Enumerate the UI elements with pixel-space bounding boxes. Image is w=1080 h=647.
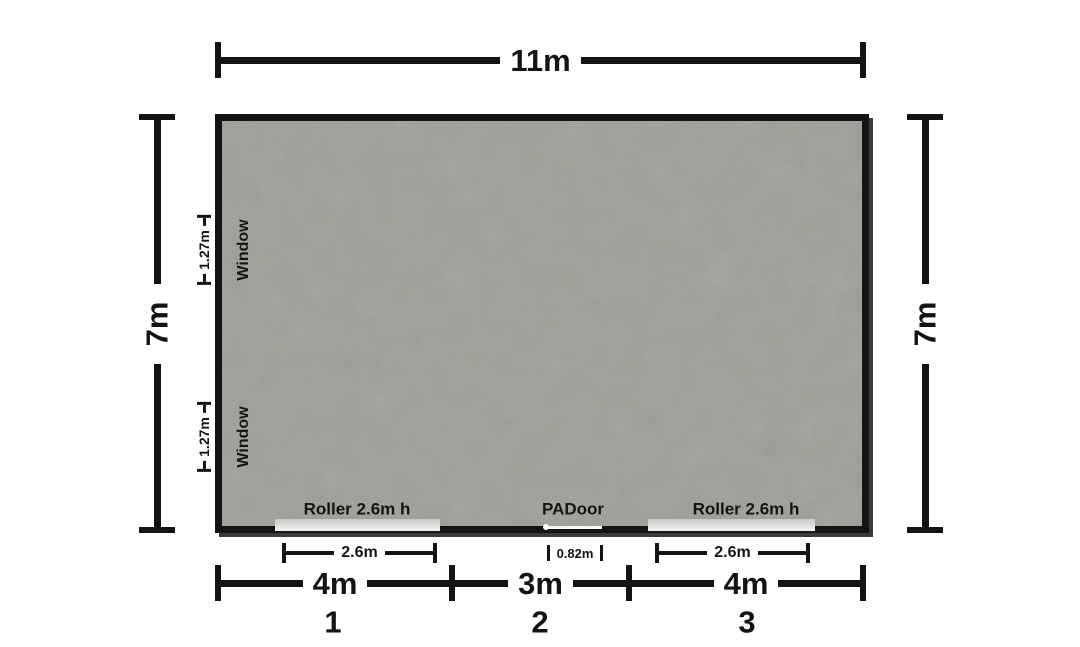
dim-tick bbox=[197, 215, 211, 218]
window-2-offset-dimension: 1.27m bbox=[197, 402, 211, 472]
dim-segment bbox=[203, 405, 206, 413]
bay-1-dimension: 4m bbox=[221, 565, 449, 601]
dim-segment bbox=[922, 364, 929, 528]
bay-3-dimension: 4m bbox=[632, 565, 860, 601]
dim-segment bbox=[367, 580, 449, 587]
pa-door-width-dimension: 0.82m bbox=[547, 545, 603, 561]
roller-door-right-width-dimension: 2.6m bbox=[655, 543, 810, 563]
dim-segment bbox=[221, 57, 500, 64]
roller-door-left bbox=[275, 519, 440, 531]
dim-segment bbox=[154, 364, 161, 528]
pa-door-hinge-dot bbox=[543, 524, 549, 530]
dim-segment bbox=[632, 580, 714, 587]
dim-tick bbox=[907, 527, 943, 533]
dim-tick bbox=[197, 402, 211, 405]
roller-door-right bbox=[648, 519, 815, 531]
bay-3-width-label: 4m bbox=[724, 568, 769, 599]
window-1-label: Window bbox=[236, 219, 252, 280]
window-1-offset-label: 1.27m bbox=[197, 230, 211, 270]
roller-door-right-label: Roller 2.6m h bbox=[693, 501, 800, 518]
bottom-bay-dimension: 4m 3m 4m bbox=[215, 565, 866, 601]
pa-door-width-label: 0.82m bbox=[557, 547, 594, 560]
dim-segment bbox=[203, 218, 206, 226]
window-2-offset-label: 1.27m bbox=[197, 417, 211, 457]
building-outline bbox=[215, 114, 869, 533]
dim-tick bbox=[197, 469, 211, 472]
top-width-dimension-label: 11m bbox=[510, 45, 570, 76]
dim-segment bbox=[581, 57, 860, 64]
roller-door-left-width-dimension: 2.6m bbox=[282, 543, 437, 563]
dim-tick bbox=[547, 545, 550, 561]
bay-2-width-label: 3m bbox=[518, 568, 563, 599]
roller-door-left-label: Roller 2.6m h bbox=[304, 501, 411, 518]
window-1-offset-dimension: 1.27m bbox=[197, 215, 211, 285]
left-height-dimension: 7m bbox=[139, 114, 175, 533]
bay-1-number: 1 bbox=[324, 607, 341, 638]
bay-3-number: 3 bbox=[738, 607, 755, 638]
dim-segment bbox=[221, 580, 303, 587]
top-width-dimension: 11m bbox=[215, 42, 866, 78]
dim-tick bbox=[433, 543, 437, 563]
roller-door-left-width-label: 2.6m bbox=[341, 545, 377, 561]
dim-tick bbox=[806, 543, 810, 563]
dim-segment bbox=[286, 551, 334, 555]
right-height-dimension: 7m bbox=[907, 114, 943, 533]
dim-tick bbox=[860, 565, 866, 601]
dim-tick bbox=[600, 545, 603, 561]
bay-2-dimension: 3m bbox=[455, 565, 626, 601]
dim-segment bbox=[203, 461, 206, 469]
dim-segment bbox=[778, 580, 860, 587]
pa-door-label: PADoor bbox=[542, 501, 604, 518]
dim-tick bbox=[860, 42, 866, 78]
dim-segment bbox=[922, 120, 929, 284]
left-height-dimension-label: 7m bbox=[142, 301, 173, 346]
pa-door bbox=[545, 526, 602, 529]
bay-2-number: 2 bbox=[531, 607, 548, 638]
dim-segment bbox=[203, 274, 206, 282]
dim-segment bbox=[758, 551, 806, 555]
dim-segment bbox=[385, 551, 433, 555]
dim-label-gap: 7m bbox=[907, 284, 943, 364]
dim-tick bbox=[139, 527, 175, 533]
bay-1-width-label: 4m bbox=[313, 568, 358, 599]
dim-label-gap: 7m bbox=[139, 284, 175, 364]
dim-tick bbox=[197, 282, 211, 285]
dim-segment bbox=[154, 120, 161, 284]
dim-segment bbox=[573, 580, 626, 587]
right-height-dimension-label: 7m bbox=[910, 301, 941, 346]
concrete-texture bbox=[222, 121, 862, 526]
window-2-label: Window bbox=[236, 406, 252, 467]
dim-segment bbox=[455, 580, 508, 587]
dim-segment bbox=[659, 551, 707, 555]
roller-door-right-width-label: 2.6m bbox=[714, 545, 750, 561]
floor-plan-canvas: 11m 7m 7m 1.27m Window 1.27m bbox=[0, 0, 1080, 647]
